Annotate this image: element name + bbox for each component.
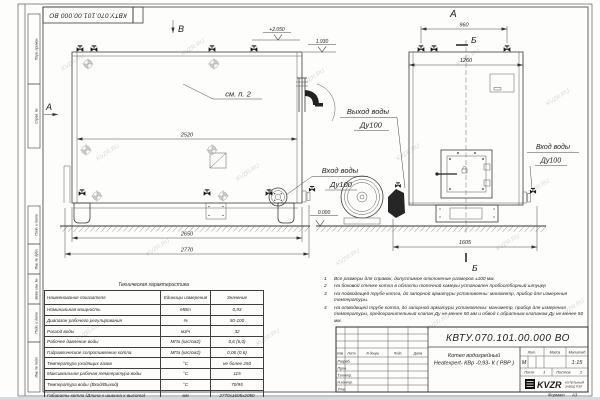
table-row: Температура воды (Вход/Выход)°С70/95 [45,379,264,390]
elevation-outlet: 1.930 [316,39,329,45]
stamp-label: Справ. № [35,108,39,124]
table-row: Температура уходящих газов°Сне более 250 [45,358,264,369]
note-text: На отводящей трубе котла, до запорной ар… [334,306,586,325]
param-name: Гидравлическое сопротивление котла [45,347,161,358]
center-mark-icon [208,58,220,70]
callout-see-item: см. п. 2 [225,90,251,99]
param-units: МВт [161,305,211,316]
param-name: Номинальная мощность [45,305,161,316]
outlet-dn: Ду100 [359,121,382,130]
col-header-value: Значение [211,291,264,305]
dim-1260: 1260 [460,58,473,64]
tb-sheet-value: 1 [543,370,545,375]
note-number: 2 [322,284,334,290]
note-text: Все размеры для справок, допустимое откл… [334,277,586,283]
table-row: Рабочее давление водыМПа (кгс/см2)0,6 (6… [45,337,264,348]
tb-mass-label: Масса [550,351,561,355]
note-number: 4 [322,306,334,325]
tb-header-izm: Изм. [337,352,344,356]
note-item: 1Все размеры для справок, допустимое отк… [322,277,586,283]
tb-lit-label: Лит. [527,351,536,355]
stamp-label: Взам. инв. № [35,278,39,299]
col-header-units: Единицы измерения [161,291,211,305]
tech-table: Наименование показателя Единицы измерени… [44,290,264,400]
tb-staff-razrab: Разраб. [338,360,351,364]
stamp-label: Инв. № дубл. [35,249,39,270]
param-name: Максимальная рабочая температура воды [45,369,161,380]
view-label-b-top: В [178,24,184,34]
drawing-sheet: KVZR.RU KVZR.RU KVZR.RU KVZR.RU KVZR.RU … [0,0,600,400]
tech-table-header-row: Наименование показателя Единицы измерени… [45,291,264,305]
note-item: 3На подводящей трубе котла, до запорной … [322,292,586,305]
note-number: 1 [322,277,334,283]
valve-icon [418,46,425,52]
top-designation-text: КВТУ.070.101.00.000 ВО [49,12,127,19]
elevation-ground: 0.000 [318,210,331,216]
table-row: Диапазон рабочего регулирования%50-100 [45,315,264,326]
tb-header-data: Дата [413,352,423,356]
param-name: Температура воды (Вход/Выход) [45,379,161,390]
note-item: 2На боковой стенке котла в области топоч… [322,284,586,290]
dim-960: 960 [459,23,469,29]
center-mark-icon [80,144,92,156]
valve-icon [209,46,216,52]
param-value: 115 [211,369,264,380]
valve-icon [204,190,211,196]
dim-2520: 2520 [180,133,194,139]
param-value: 0,93 [211,305,264,316]
param-name: Рабочее давление воды [45,337,161,348]
inlet-side-dn: Ду100 [329,180,352,189]
valve-icon [530,189,536,194]
param-value: не более 250 [211,358,264,369]
section-label-b-top: Б [471,35,477,45]
inlet-side-label: Вход воды [322,166,359,175]
valve-icon [309,187,315,192]
inlet-front-dn: Ду100 [540,158,561,165]
valve-icon [251,46,258,52]
center-mark-icon [91,190,103,202]
section-label-b-bottom: Б [472,263,478,273]
logo-text: KVZR [537,380,562,390]
tb-header-ndoc: N докум. [367,352,380,356]
title-block: КВТУ.070.101.00.000 ВО Котел водогрейный… [336,327,588,398]
fan-duct [388,189,405,218]
inlet-front-label: Вход воды [536,143,571,151]
tb-scale-label: Масштаб [569,351,587,355]
tb-staff-utv: Утв. [338,388,346,392]
stamp-label: Подп. и дата [35,214,39,235]
kvzr-logo: KVZR КОТЕЛЬНЫЙ ЗАВОД РЭП [525,379,585,390]
col-header-parameter: Наименование показателя [45,291,161,305]
valve-icon [431,46,438,52]
stamp-label: Перв. примен. [35,38,39,61]
tb-staff-nkontr: Н.контр. [338,381,353,385]
center-mark-icon [82,58,94,70]
tb-header-list: Лист [346,352,356,356]
outlet-label: Выход воды [347,107,390,116]
param-name: Расход воды [45,326,161,337]
note-text: На подводящей трубе котла, до запорной а… [334,292,586,305]
ground-line [60,226,546,232]
table-row: Расход водым3/ч32 [45,326,264,337]
elevation-mark-icon [318,47,326,53]
tb-staff-prov: Пров. [338,367,347,371]
valve-icon [77,46,84,52]
param-name: Температура уходящих газов [45,358,161,369]
boiler-side-view [64,46,335,223]
port-labels: Выход воды Ду100 Вход воды Ду100 Вход во… [286,107,579,195]
param-units: °С [161,358,211,369]
dim-2650: 2650 [180,232,194,238]
table-row: Номинальная мощностьМВт0,93 [45,305,264,316]
stamp-label: Инв. № подл. [35,356,39,377]
tb-lit-value: М [522,360,527,366]
tb-staff-tkontr: Т.контр. [338,374,353,378]
param-units: м3/ч [161,326,211,337]
dim-1605: 1605 [459,240,472,246]
margin-stamps: Перв. примен. Справ. № Подп. и дата Инв.… [28,14,40,392]
valve-icon [504,46,511,52]
notes-list: 1Все размеры для справок, допустимое отк… [322,277,586,326]
tb-sheet-label: Лист [523,370,535,375]
center-mark-icon [206,144,218,156]
logo-caption-2: ЗАВОД РЭП [565,385,583,389]
param-value: 50-100 [211,315,264,326]
view-label-a-left: А [45,102,52,112]
tb-header-podp: Подп. [394,352,403,356]
center-mark-icon [217,190,229,202]
furnace-door [435,150,492,198]
dim-2770: 2770 [180,248,194,254]
valve-icon [395,183,401,188]
param-name: Диапазон рабочего регулирования [45,315,161,326]
table-row: Гидравлическое сопротивление котлаМПа (к… [45,347,264,358]
param-units: °С [161,379,211,390]
note-item: 4На отводящей трубе котла, до запорной а… [322,306,586,325]
product-name-line2: Heatexpert- КВр -0,93- К ( РВР ) [434,361,514,367]
valve-icon [79,190,86,196]
param-value: 0,6 (6,0) [211,337,264,348]
view-label-a-front: А [449,9,457,20]
product-name-line1: Котел водогрейный [448,352,500,359]
param-units: % [161,315,211,326]
param-units: МПа (кгс/см2) [161,347,211,358]
param-value: 0,06 (0,6) [211,347,264,358]
param-value: 32 [211,326,264,337]
table-row: Максимальная рабочая температура воды°С1… [45,369,264,380]
water-inlet-flange [269,188,287,206]
elevation-mark-icon [274,35,282,41]
param-units: МПа (кгс/см2) [161,337,211,348]
stamp-label: Подп. и дата [35,312,39,333]
tb-scale-value: 1:15 [572,360,584,366]
tech-table-title: Техническая характеристика [44,282,263,288]
top-designation-box: КВТУ.070.101.00.000 ВО [43,7,143,23]
tb-sheets-label: Листов [555,370,571,375]
valve-icon [91,46,98,52]
elevation-top: +2.050 [269,27,285,33]
note-text: На боковой стенке котла в области топочн… [334,284,586,290]
elevation-mark-icon [316,221,324,227]
tb-sheets-value: 2 [579,370,583,375]
param-value: 70/95 [211,379,264,390]
doc-designation: КВТУ.070.101.00.000 ВО [446,333,570,344]
note-number: 3 [322,292,334,305]
boiler-front-view [341,40,536,233]
param-units: °С [161,369,211,380]
